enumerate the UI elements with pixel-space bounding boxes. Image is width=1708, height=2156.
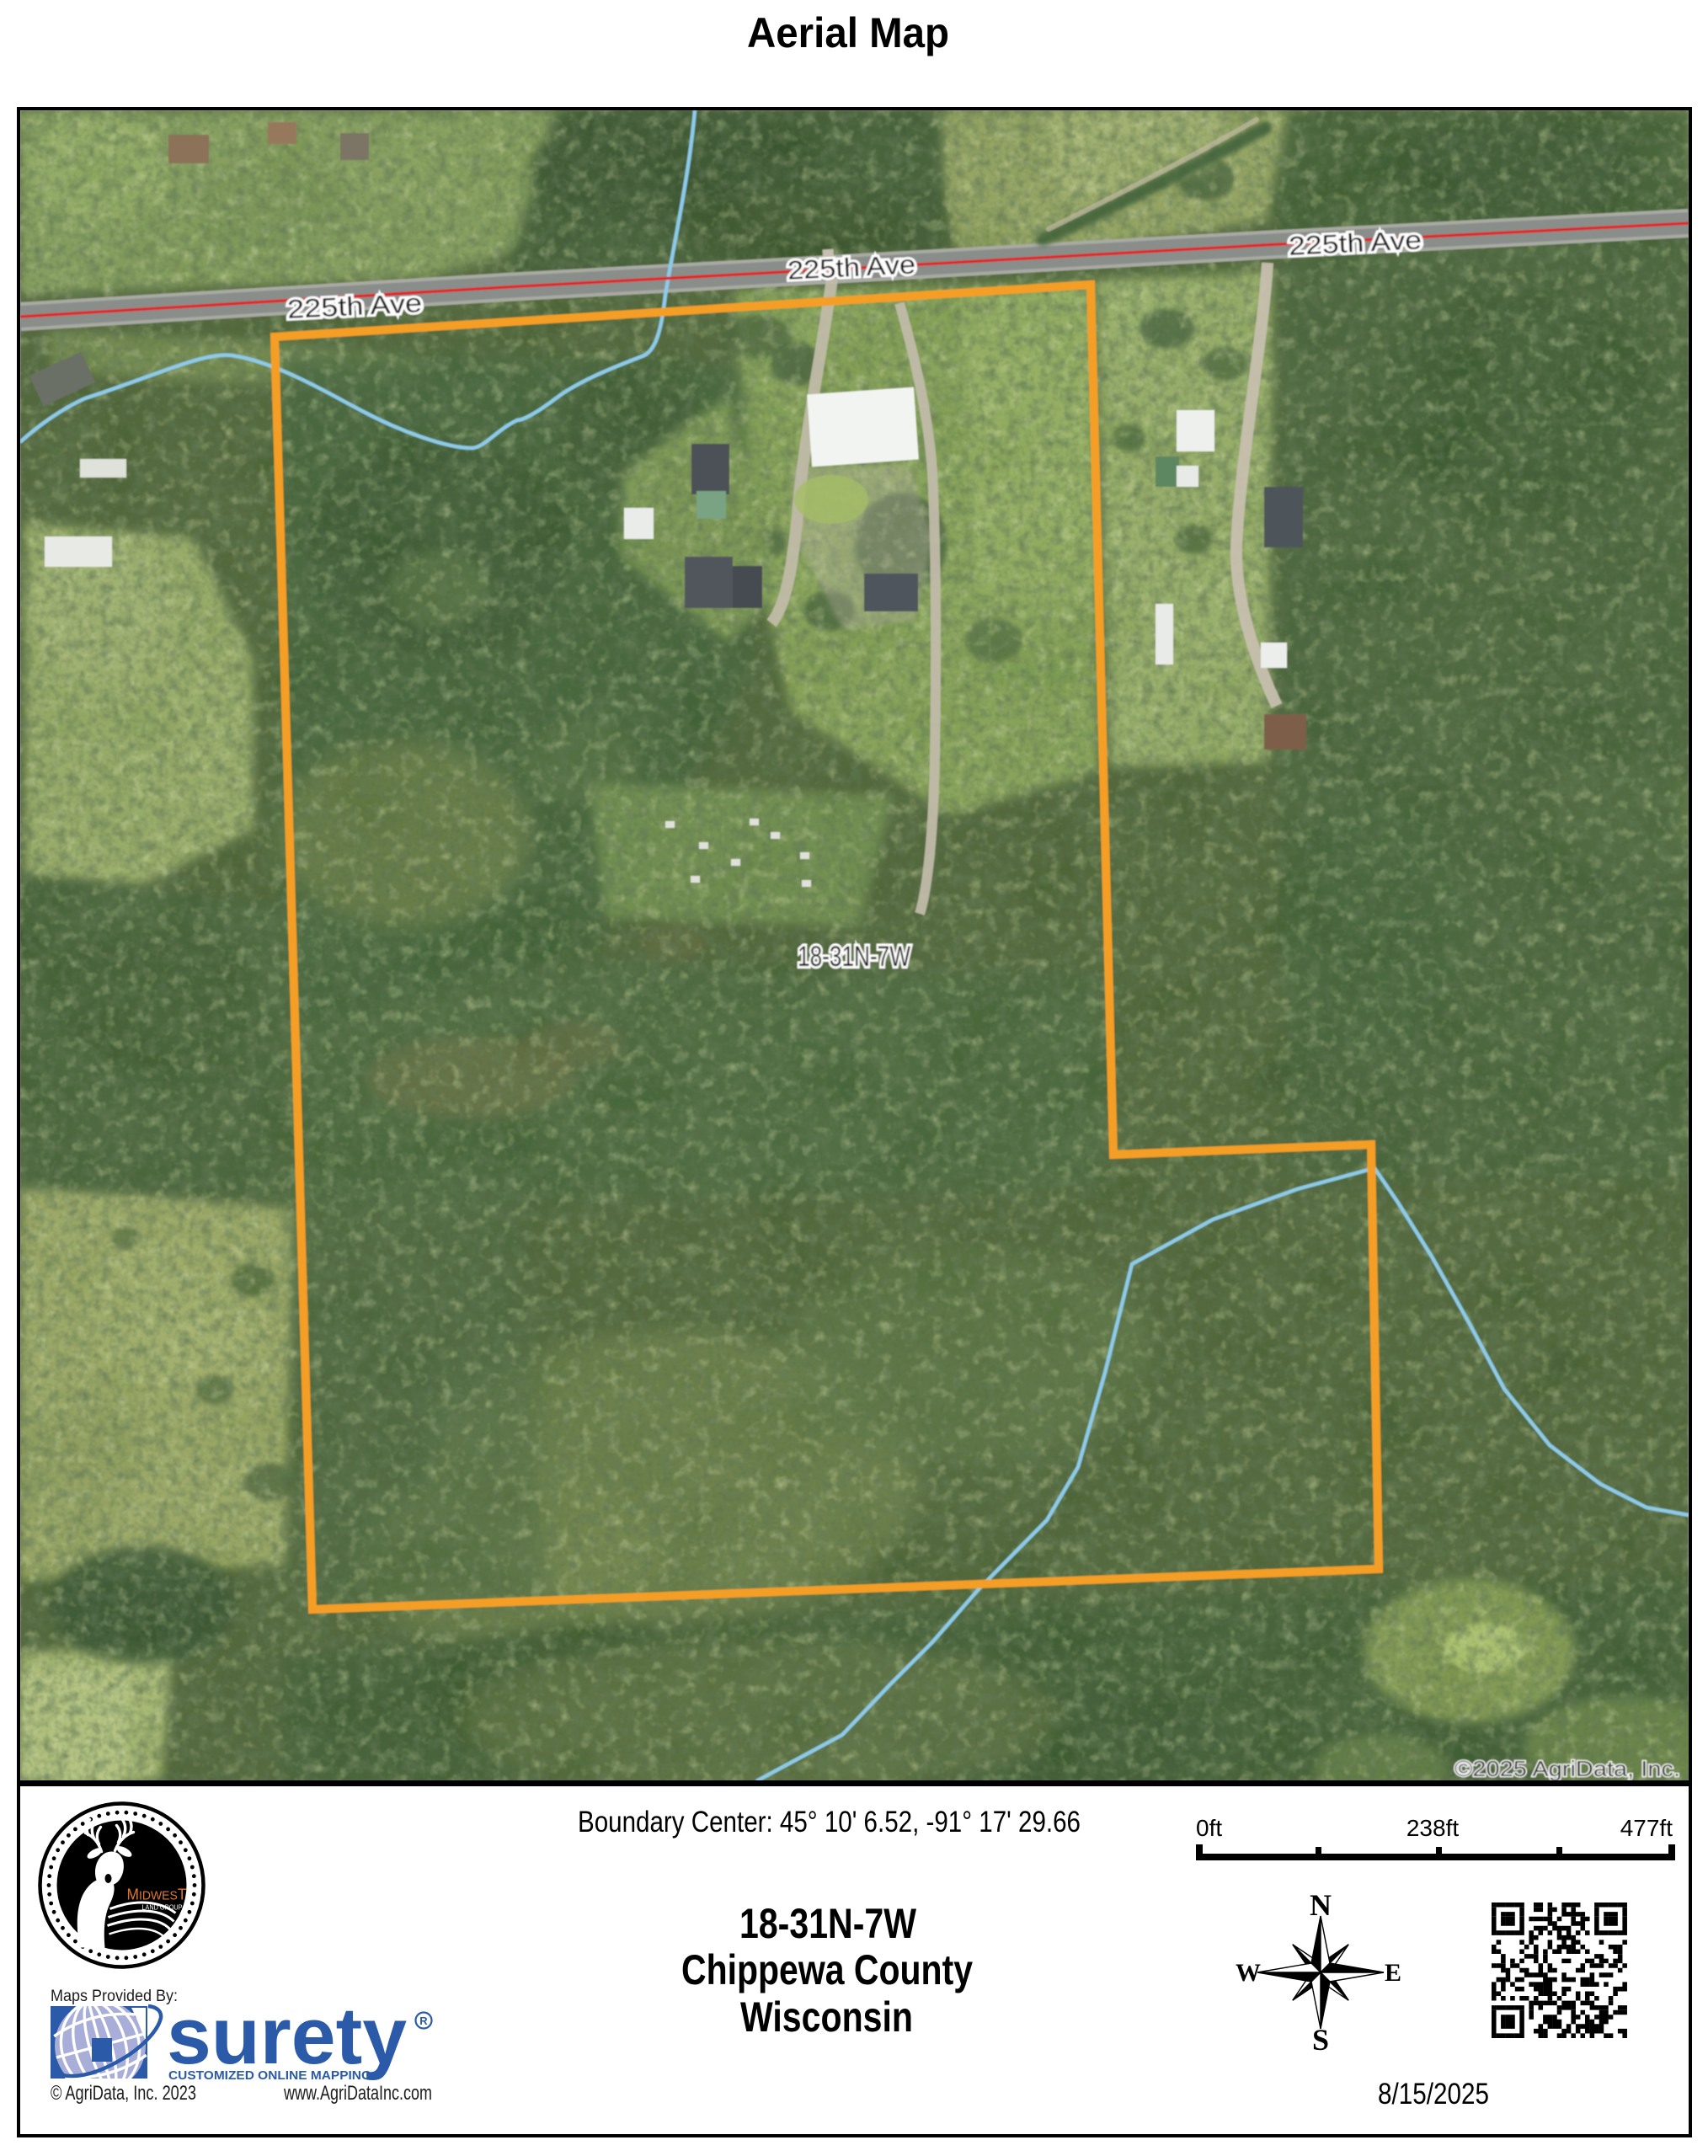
svg-text:477ft: 477ft <box>1620 1815 1673 1841</box>
svg-text:©2025 AgriData, Inc.: ©2025 AgriData, Inc. <box>1454 1756 1680 1781</box>
svg-text:LAND GROUP: LAND GROUP <box>142 1903 183 1912</box>
svg-text:18-31N-7W: 18-31N-7W <box>739 1900 917 1947</box>
svg-text:8/15/2025: 8/15/2025 <box>1378 2078 1489 2111</box>
svg-text:© AgriData, Inc. 2023: © AgriData, Inc. 2023 <box>51 2082 196 2105</box>
svg-text:E: E <box>1385 1959 1401 1987</box>
svg-text:0ft: 0ft <box>1196 1815 1222 1841</box>
svg-text:238ft: 238ft <box>1406 1815 1459 1841</box>
svg-text:Boundary Center: 45° 10' 6.52,: Boundary Center: 45° 10' 6.52, -91° 17' … <box>578 1806 1081 1838</box>
svg-text:Wisconsin: Wisconsin <box>740 1993 913 2041</box>
svg-text:W: W <box>1236 1959 1261 1987</box>
svg-text:Aerial Map: Aerial Map <box>747 9 949 56</box>
svg-text:surety: surety <box>167 1991 407 2081</box>
svg-text:225th Ave: 225th Ave <box>787 249 916 285</box>
svg-text:www.AgriDataInc.com: www.AgriDataInc.com <box>283 2082 432 2105</box>
svg-text:N: N <box>1310 1888 1332 1922</box>
svg-text:Chippewa County: Chippewa County <box>681 1946 973 1993</box>
svg-text:Maps Provided By:: Maps Provided By: <box>51 1988 178 2005</box>
svg-text:18-31N-7W: 18-31N-7W <box>798 941 910 973</box>
svg-text:R: R <box>419 2015 428 2027</box>
svg-text:CUSTOMIZED ONLINE MAPPING: CUSTOMIZED ONLINE MAPPING <box>168 2069 371 2083</box>
svg-text:S: S <box>1312 2023 1329 2057</box>
